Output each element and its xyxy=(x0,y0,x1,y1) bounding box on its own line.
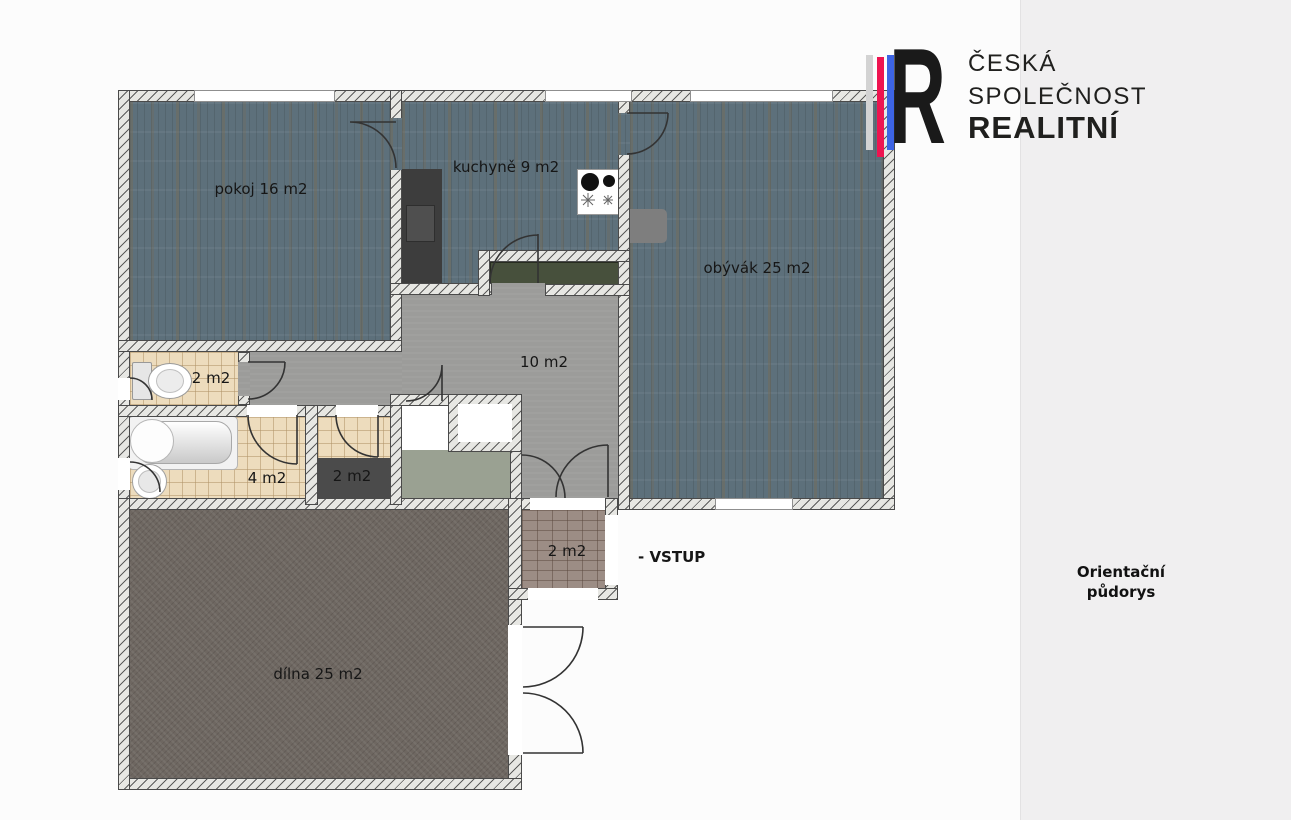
label-dilna: dílna 25 m2 xyxy=(273,665,362,683)
label-chodba: 10 m2 xyxy=(520,353,568,371)
door-opening-kuchyne xyxy=(492,283,545,295)
boiler xyxy=(130,419,174,463)
label-obyvak: obývák 25 m2 xyxy=(703,259,810,277)
wall-niche-bottom xyxy=(545,284,630,296)
door-opening-komora xyxy=(336,405,378,417)
door-opening-vstup xyxy=(605,515,618,585)
wall-dilna-bottom xyxy=(118,778,522,790)
label-vstup: - VSTUP xyxy=(638,548,705,566)
wall-niche-top xyxy=(478,250,630,262)
room-chodba-strip-floor xyxy=(250,352,402,405)
door-opening-wall-left-wc xyxy=(118,378,130,400)
door-opening-wc xyxy=(238,362,250,396)
wall-kitchen-bottom xyxy=(390,283,492,295)
label-komora: 2 m2 xyxy=(333,467,371,485)
page: Orientační půdorys xyxy=(0,0,1291,820)
door-exterior-1 xyxy=(523,627,583,687)
closet-floor xyxy=(402,450,510,498)
washbasin-inner xyxy=(138,470,161,493)
door-opening-dilna-ext xyxy=(508,625,522,755)
logo-stripe-red xyxy=(877,57,884,157)
toilet-bowl-inner xyxy=(156,369,184,393)
logo-letter: R xyxy=(889,36,946,156)
door-opening-koupelna xyxy=(247,405,297,417)
plan-caption: Orientační půdorys xyxy=(1021,562,1221,602)
label-zadveri: 2 m2 xyxy=(548,542,586,560)
door-opening-zadveri-bottom xyxy=(528,588,598,600)
plan-caption-line2: půdorys xyxy=(1021,582,1221,602)
label-koupelna: 4 m2 xyxy=(248,469,286,487)
door-exterior-2 xyxy=(523,693,583,753)
kitchen-cabinet-inner xyxy=(406,205,435,242)
brand-logo: R ČESKÁ SPOLEČNOST REALITNÍ xyxy=(0,0,1291,200)
wall-komora-closet xyxy=(390,398,402,505)
wall-koupelna-komora xyxy=(305,405,318,505)
plan-caption-line1: Orientační xyxy=(1021,562,1221,582)
brand-name-line2: SPOLEČNOST xyxy=(968,83,1147,111)
logo-stripe-gray xyxy=(866,55,873,150)
door-opening-zadveri-top xyxy=(530,498,605,510)
wall-dilna-left xyxy=(118,498,130,790)
radiator xyxy=(625,209,667,243)
brand-name-line3: REALITNÍ xyxy=(968,110,1119,146)
door-opening-wall-left-bath xyxy=(118,458,130,490)
wall-pokoj-bottom xyxy=(118,340,402,352)
room-dilna-floor xyxy=(130,510,508,778)
brand-name-line1: ČESKÁ xyxy=(968,50,1057,78)
window-obyvak-bottom xyxy=(715,498,793,510)
label-wc: 2 m2 xyxy=(192,369,230,387)
wall-niche-left xyxy=(478,250,490,296)
closet-box-inner xyxy=(458,404,512,442)
